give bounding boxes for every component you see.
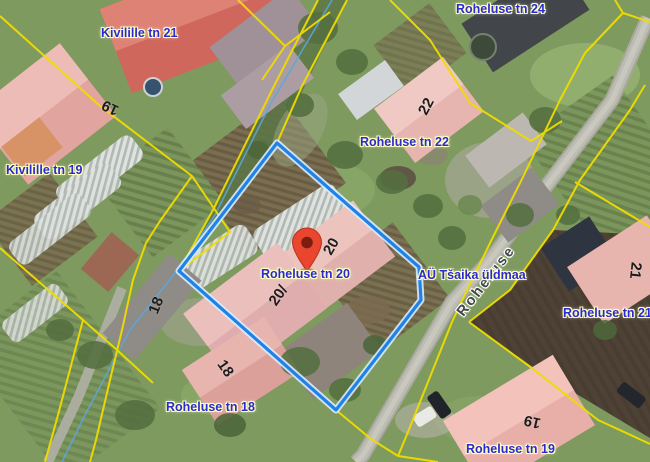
house-number: 19 [523, 412, 543, 430]
address-label-roheluse-tn-18: Roheluse tn 18 [166, 401, 255, 414]
address-label-roheluse-tn-22: Roheluse tn 22 [360, 136, 449, 149]
address-label-au-tsaika-uldmaa: AÜ Tšaika üldmaa [418, 269, 526, 282]
address-label-roheluse-tn-19: Roheluse tn 19 [466, 443, 555, 456]
map-canvas[interactable]: 19 22 20 20/ 18 18 19 21 Roheluse Kivili… [0, 0, 650, 462]
address-label-kivilille-tn-19: Kivilille tn 19 [6, 164, 82, 177]
aerial-imagery [0, 0, 650, 462]
address-label-roheluse-tn-21: Roheluse tn 21 [563, 307, 650, 320]
address-label-roheluse-tn-24: Roheluse tn 24 [456, 3, 545, 16]
house-number: 21 [627, 261, 644, 279]
address-label-roheluse-tn-20: Roheluse tn 20 [261, 268, 350, 281]
address-label-kivilille-tn-21: Kivilille tn 21 [101, 27, 177, 40]
